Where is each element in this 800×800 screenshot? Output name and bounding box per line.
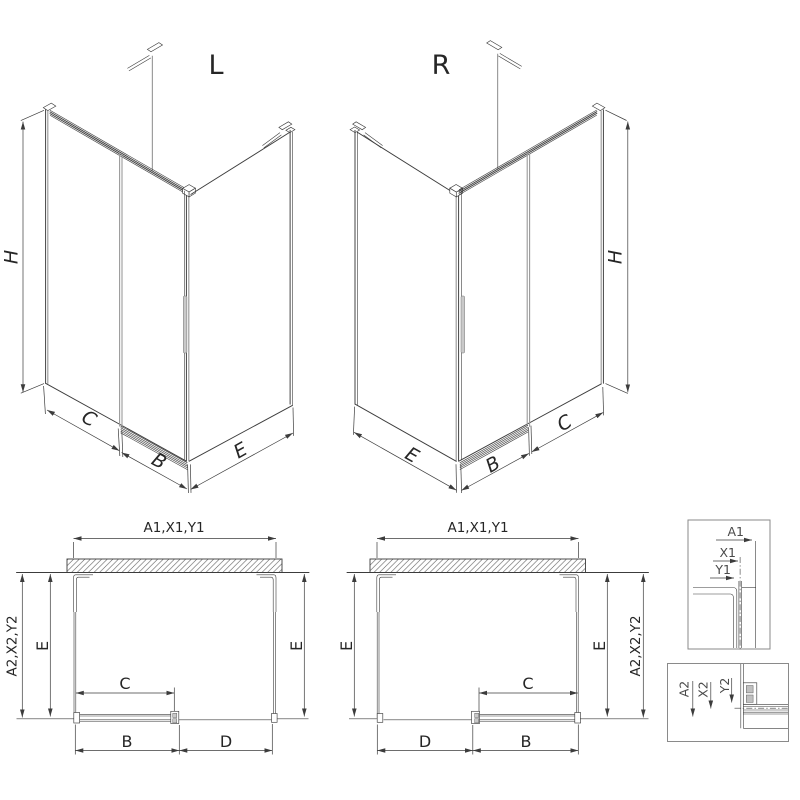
dim-label-a1x1y1: A1,X1,Y1	[143, 520, 204, 536]
shower-enclosure-drawing: L	[0, 0, 800, 800]
dim-label-y2: Y2	[717, 678, 732, 695]
dim-label-d: D	[419, 732, 431, 751]
dim-label-d: D	[220, 732, 232, 751]
dim-label-b: B	[482, 452, 504, 478]
dim-label-h: H	[605, 250, 627, 264]
iso-view-right: R	[350, 41, 628, 493]
dim-label-c: C	[522, 674, 533, 693]
dim-label-e-right: E	[590, 641, 609, 651]
dim-label-a2: A2	[677, 681, 692, 698]
plan-view-right: A1,X1,Y1 C	[337, 520, 649, 755]
door-handle	[183, 296, 187, 353]
iso-left-structure	[43, 43, 295, 470]
door-handle	[461, 296, 465, 353]
door-track	[472, 711, 581, 723]
plan-view-left: A1,X1,Y1 C	[5, 520, 310, 755]
dim-label-e: E	[401, 443, 422, 468]
dim-label-c: C	[119, 674, 130, 693]
dim-label-e-right: E	[287, 641, 306, 651]
dim-label-a2x2y2: A2,X2,Y2	[628, 615, 644, 676]
dim-label-c: C	[78, 406, 101, 432]
wall-hatch	[67, 559, 282, 573]
dim-label-e-left: E	[33, 641, 52, 651]
dim-label-a1x1y1: A1,X1,Y1	[447, 520, 508, 536]
dim-label-a2x2y2: A2,X2,Y2	[5, 615, 21, 676]
detail-bottom-rail: A2 X2 Y2	[668, 664, 789, 742]
dim-label-h: H	[1, 250, 23, 264]
ceiling-bracket-plate	[147, 43, 162, 52]
dim-label-e: E	[230, 438, 251, 463]
iso-right-dimensions: E B C H	[353, 110, 627, 493]
door-track	[74, 711, 179, 723]
dim-label-c: C	[553, 410, 576, 436]
dim-label-y1: Y1	[714, 562, 731, 577]
ceiling-bracket-plate	[487, 41, 502, 50]
dim-label-x1: X1	[719, 545, 736, 560]
dim-label-b: B	[521, 732, 532, 751]
iso-view-left: L	[1, 43, 295, 493]
dim-label-e-left: E	[337, 641, 356, 651]
view-label-left: L	[208, 50, 223, 81]
dim-label-a1: A1	[727, 524, 744, 539]
view-label-right: R	[432, 50, 451, 81]
dim-label-b: B	[122, 732, 133, 751]
iso-right-structure	[350, 41, 605, 470]
technical-drawing-page: L	[0, 0, 800, 800]
detail-wall-profile: A1 X1 Y1	[688, 520, 770, 650]
wall-hatch	[370, 559, 586, 573]
dim-label-x2: X2	[696, 681, 711, 698]
dim-label-b: B	[148, 448, 170, 474]
